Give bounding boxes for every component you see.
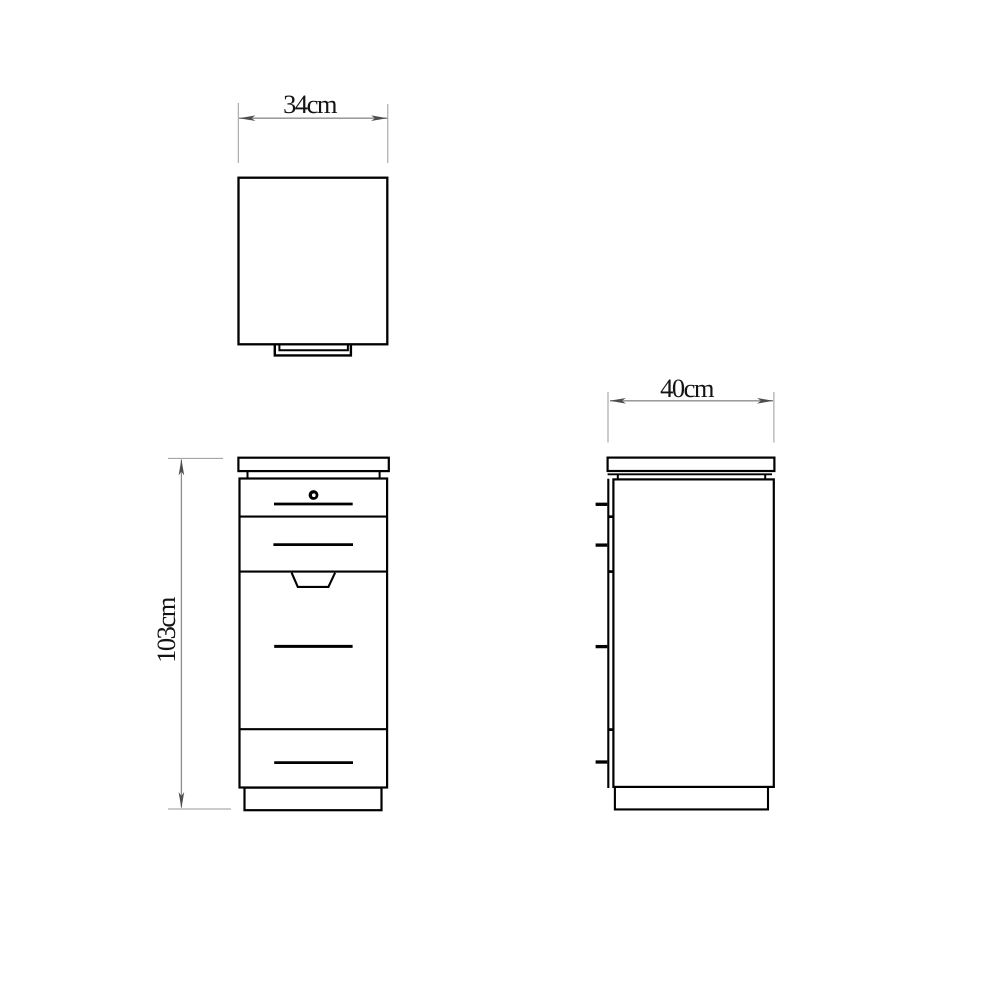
svg-text:103cm: 103cm <box>151 596 181 663</box>
svg-text:40cm: 40cm <box>660 373 715 403</box>
svg-text:34cm: 34cm <box>283 89 338 119</box>
